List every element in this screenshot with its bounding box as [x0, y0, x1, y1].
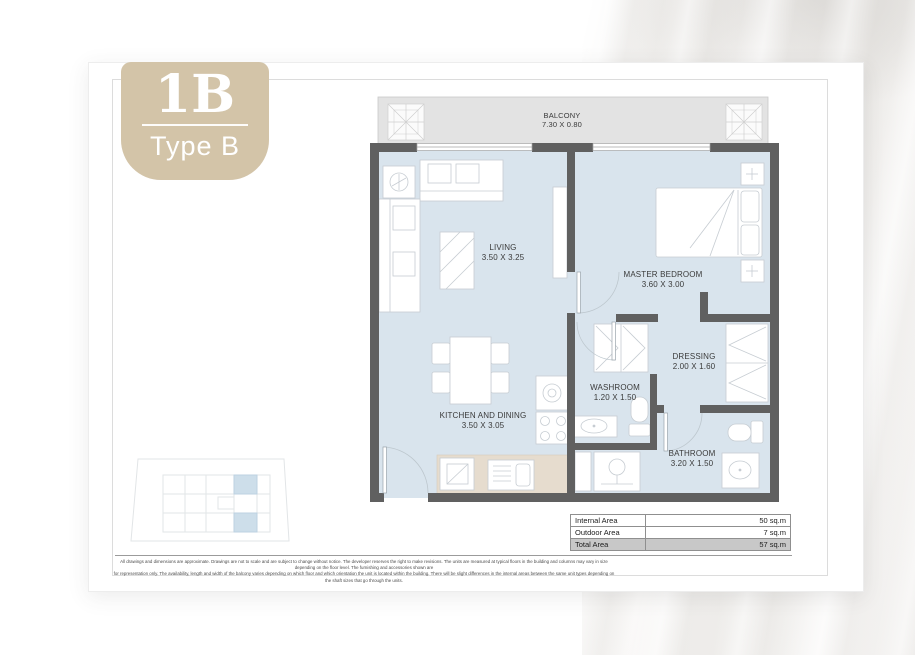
room-name: LIVING [489, 243, 516, 252]
washroom-label: WASHROOM 1.20 X 1.50 [555, 383, 675, 403]
room-name: WASHROOM [590, 383, 640, 392]
tv-unit-icon [553, 187, 567, 278]
room-name: BALCONY [544, 111, 581, 120]
kitchen-dining-label: KITCHEN AND DINING 3.50 X 3.05 [393, 411, 573, 431]
oven-icon [440, 458, 474, 490]
room-dims: 7.30 X 0.80 [482, 120, 642, 129]
unit-code: 1B [121, 67, 269, 123]
living-label: LIVING 3.50 X 3.25 [423, 243, 583, 263]
area-table: Internal Area 50 sq.m Outdoor Area 7 sq.… [570, 514, 791, 551]
balcony-label: BALCONY 7.30 X 0.80 [482, 111, 642, 129]
area-row-label: Outdoor Area [571, 527, 646, 538]
dressing-label: DRESSING 2.00 X 1.60 [634, 352, 754, 372]
unit-type-label: Type B [121, 131, 269, 162]
table-row: Internal Area 50 sq.m [571, 515, 790, 526]
room-name: KITCHEN AND DINING [440, 411, 527, 420]
table-row: Outdoor Area 7 sq.m [571, 526, 790, 538]
room-name: BATHROOM [669, 449, 716, 458]
floorplan-sheet: BALCONY 7.30 X 0.80 LIVING 3.50 X 3.25 M… [0, 0, 915, 655]
area-row-label: Total Area [571, 539, 646, 550]
key-plan-highlight-unit [234, 475, 257, 494]
disclaimer-text: All drawings and dimensions are approxim… [113, 559, 615, 584]
disclaimer-line: for representation only. The availabilit… [113, 571, 615, 583]
key-plan [131, 459, 289, 541]
side-table-icon [383, 166, 415, 198]
room-dims: 3.20 X 1.50 [622, 459, 762, 469]
bathroom-label: BATHROOM 3.20 X 1.50 [622, 449, 762, 469]
bed-icon [656, 188, 762, 257]
master-bedroom-label: MASTER BEDROOM 3.60 X 3.00 [573, 270, 753, 290]
area-row-value: 50 sq.m [646, 516, 790, 525]
planter-icon [726, 104, 762, 140]
table-row-total: Total Area 57 sq.m [571, 538, 790, 550]
key-plan-highlight-unit [234, 513, 257, 532]
footer-rule [115, 555, 792, 556]
area-row-value: 7 sq.m [646, 528, 790, 537]
area-row-label: Internal Area [571, 515, 646, 526]
nightstand-icon [741, 163, 764, 185]
room-dims: 3.50 X 3.05 [393, 421, 573, 431]
room-dims: 3.50 X 3.25 [423, 253, 583, 263]
area-row-value: 57 sq.m [646, 540, 790, 549]
disclaimer-line: All drawings and dimensions are approxim… [113, 559, 615, 571]
planter-icon [388, 104, 424, 140]
room-name: DRESSING [673, 352, 716, 361]
room-dims: 3.60 X 3.00 [573, 280, 753, 290]
sink-icon [488, 460, 534, 490]
washbasin-icon [573, 416, 617, 437]
unit-type-logo: 1B Type B [121, 62, 269, 180]
toilet-icon [728, 421, 763, 443]
room-name: MASTER BEDROOM [624, 270, 703, 279]
room-dims: 1.20 X 1.50 [555, 393, 675, 403]
room-dims: 2.00 X 1.60 [634, 362, 754, 372]
